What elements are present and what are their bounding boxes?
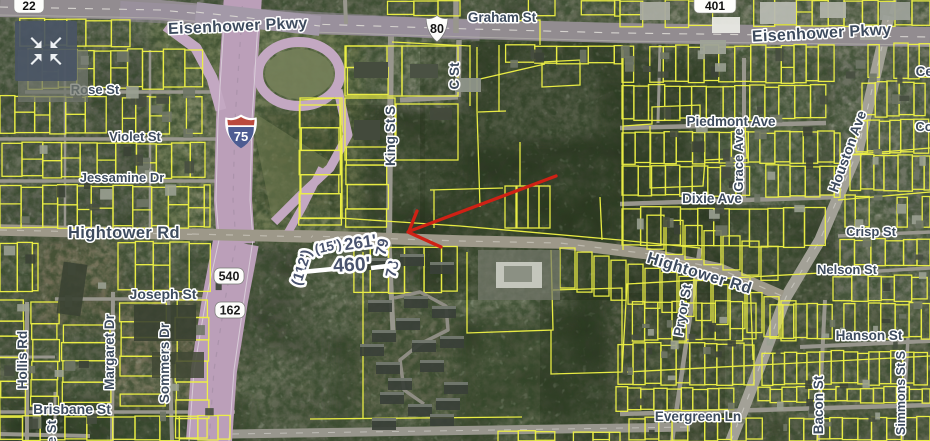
svg-text:Nelson St: Nelson St (817, 262, 878, 277)
svg-text:22: 22 (22, 0, 36, 13)
svg-text:Dixie Ave: Dixie Ave (682, 191, 742, 206)
svg-text:C St: C St (447, 62, 462, 90)
svg-text:Brisbane St: Brisbane St (33, 401, 111, 417)
svg-text:78: 78 (383, 259, 403, 279)
svg-text:e St: e St (44, 419, 59, 441)
svg-text:Grace Ave: Grace Ave (731, 128, 746, 191)
svg-text:Violet St: Violet St (109, 129, 161, 144)
svg-text:Sommers Dr: Sommers Dr (157, 322, 172, 403)
svg-text:Graham St: Graham St (468, 10, 537, 25)
svg-text:460': 460' (333, 253, 371, 277)
svg-text:401: 401 (705, 0, 725, 13)
svg-text:Piedmont Ave: Piedmont Ave (686, 114, 776, 129)
svg-text:Cec: Cec (916, 64, 930, 79)
svg-text:Simmons St S: Simmons St S (894, 351, 908, 435)
svg-text:Hollis Rd: Hollis Rd (15, 331, 30, 390)
svg-text:79: 79 (373, 237, 393, 257)
svg-text:162: 162 (220, 304, 241, 318)
svg-text:King St S: King St S (383, 106, 398, 166)
svg-text:Co: Co (915, 119, 930, 134)
svg-text:Hightower Rd: Hightower Rd (68, 224, 180, 242)
svg-text:Joseph St: Joseph St (130, 286, 197, 302)
svg-text:Margaret Dr: Margaret Dr (102, 313, 117, 390)
svg-text:Evergreen Ln: Evergreen Ln (655, 409, 741, 424)
svg-text:Hanson St: Hanson St (836, 328, 903, 343)
svg-text:540: 540 (219, 270, 240, 284)
svg-text:80: 80 (430, 22, 444, 36)
svg-text:Jessamine Dr: Jessamine Dr (80, 170, 165, 185)
svg-text:Bacon St: Bacon St (811, 375, 826, 434)
svg-text:75: 75 (234, 129, 248, 144)
svg-text:Crisp St: Crisp St (846, 224, 897, 239)
